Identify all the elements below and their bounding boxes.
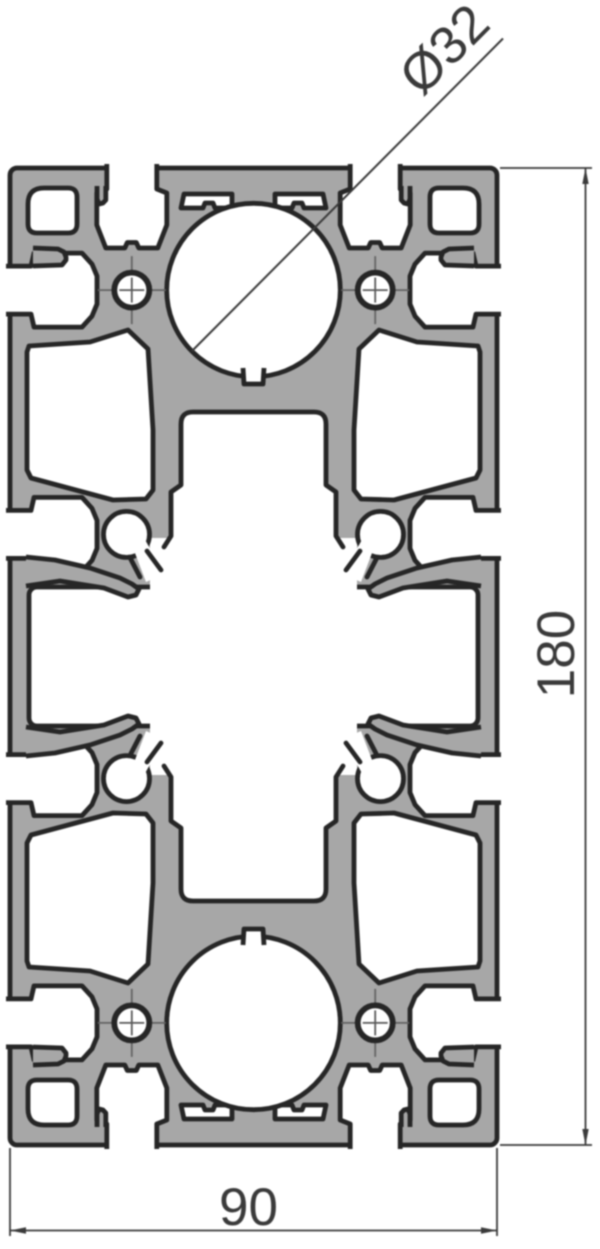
svg-text:Ø32: Ø32 xyxy=(388,0,501,106)
svg-text:180: 180 xyxy=(527,610,586,698)
svg-text:90: 90 xyxy=(219,1178,278,1237)
